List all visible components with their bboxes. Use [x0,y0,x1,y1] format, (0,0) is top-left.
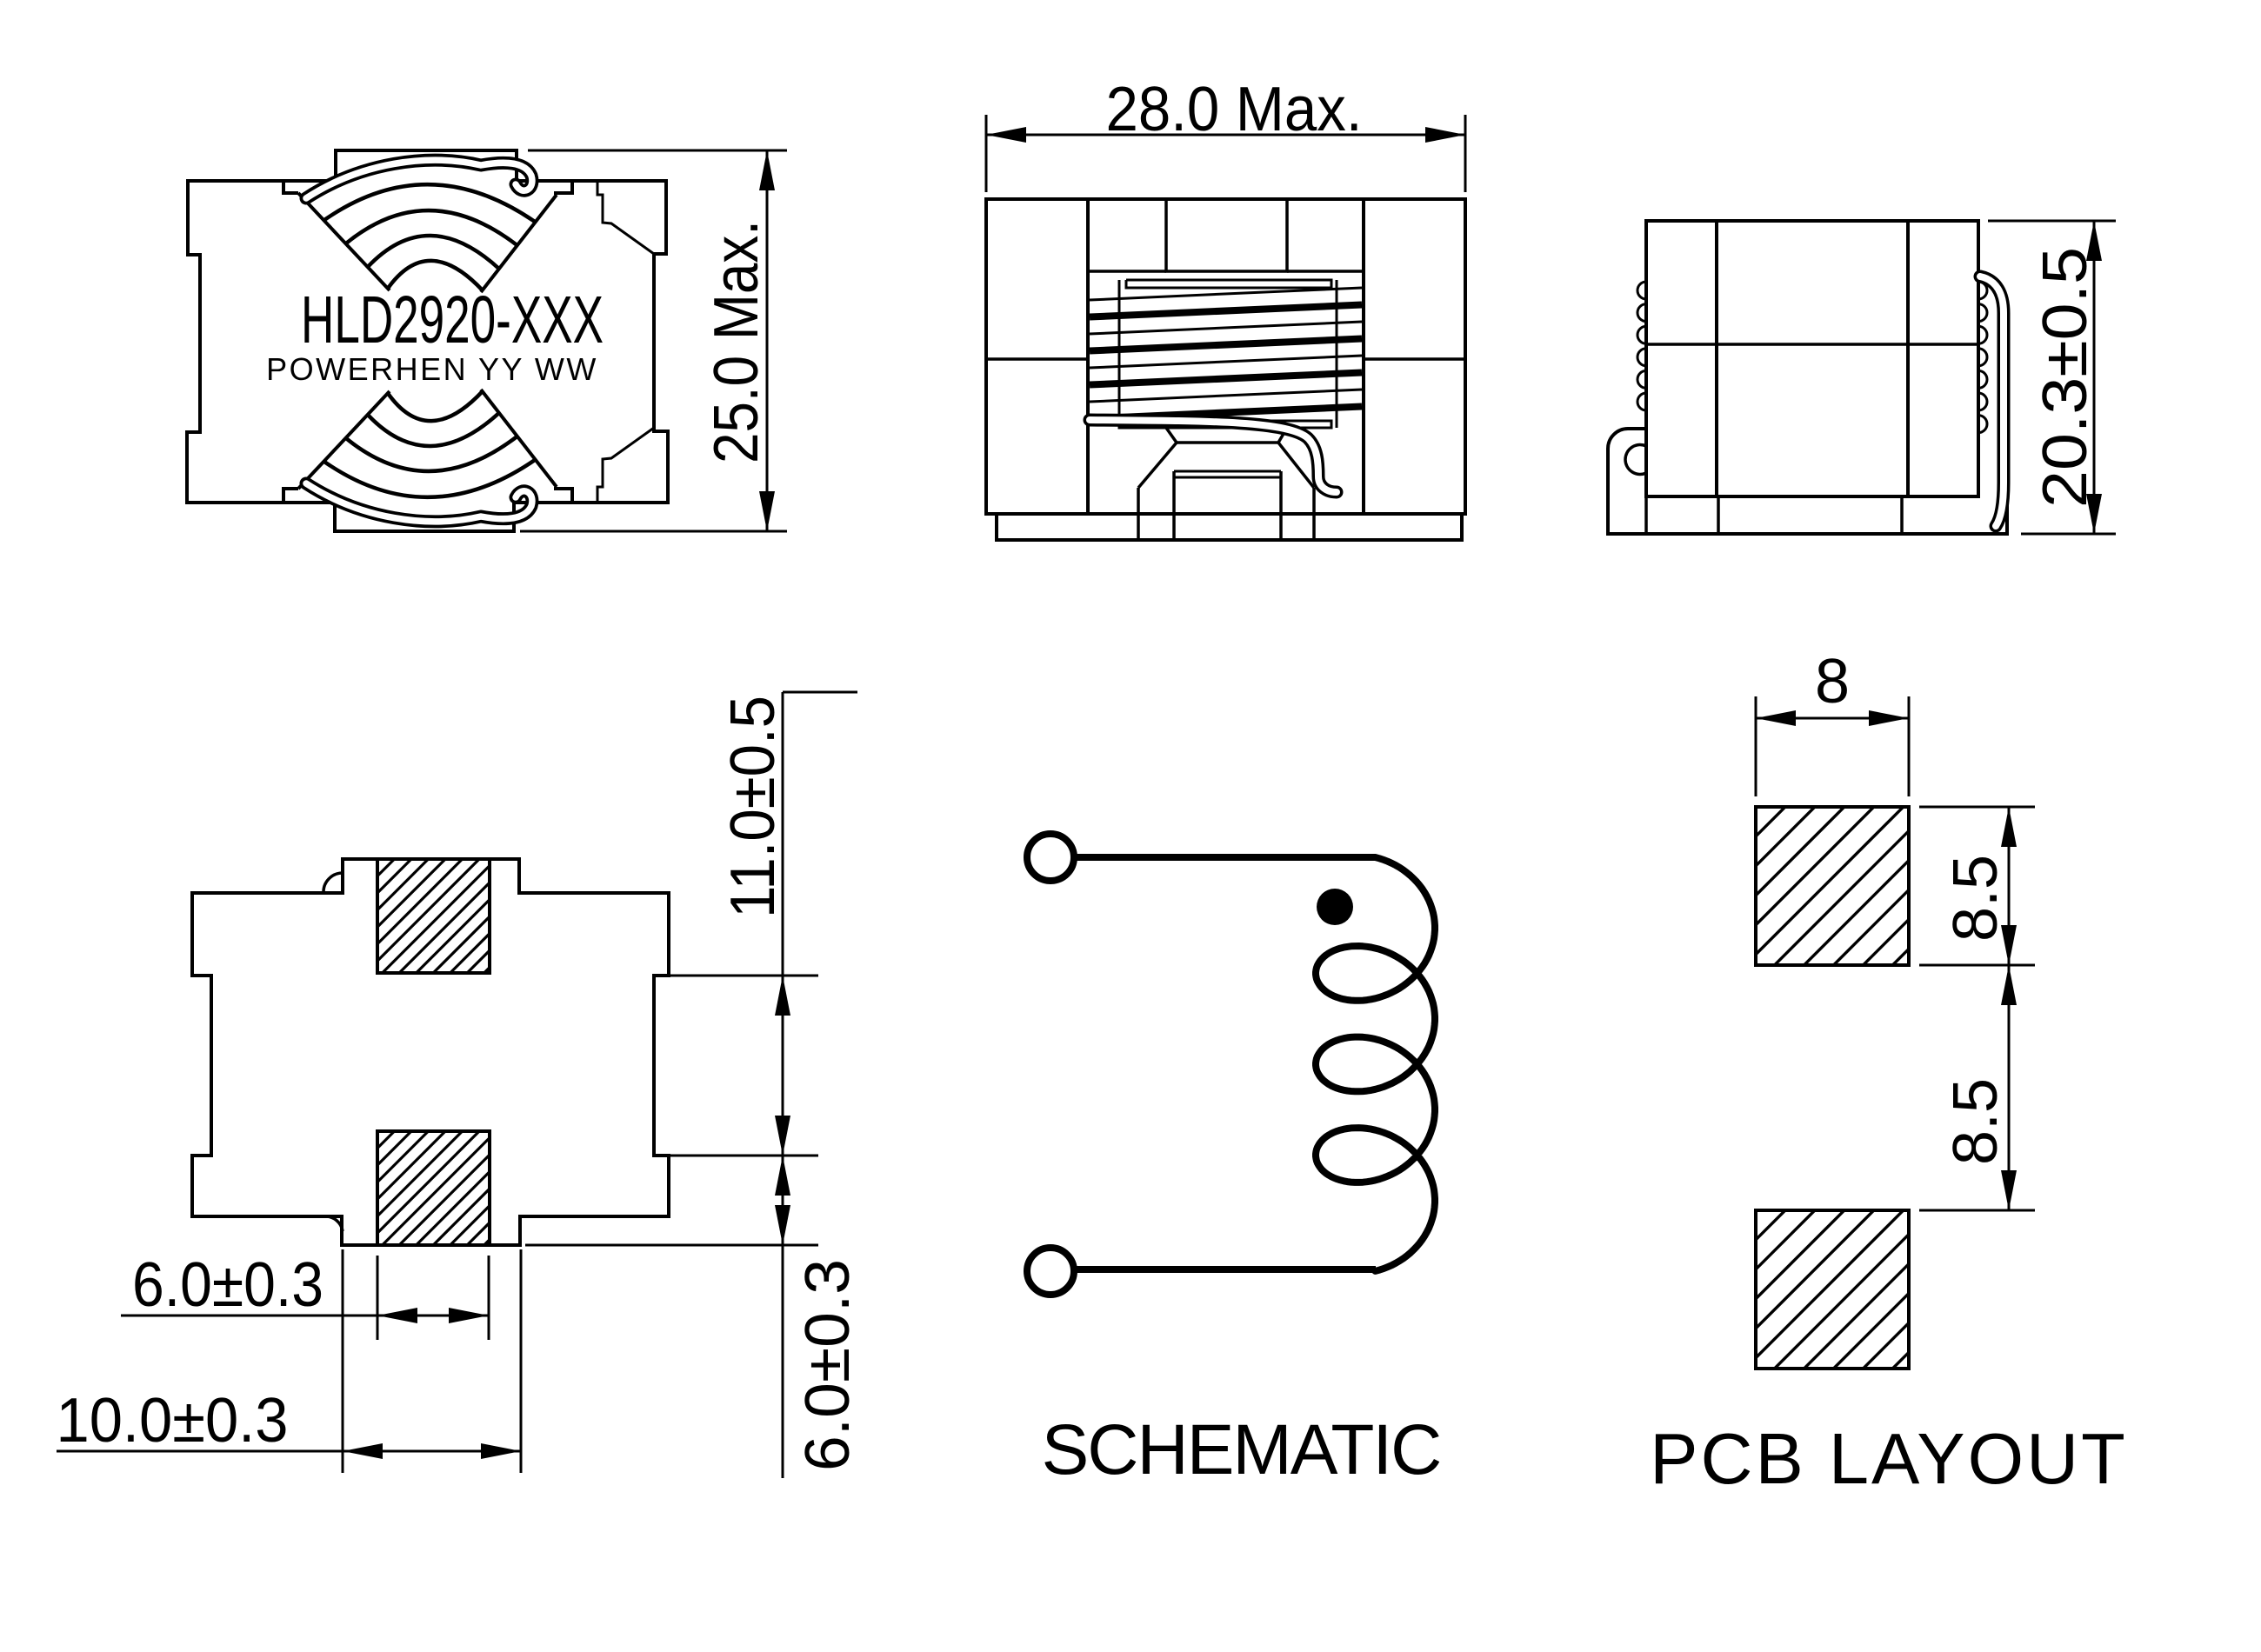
svg-text:6.0±0.3: 6.0±0.3 [793,1259,863,1471]
svg-text:25.0 Max.: 25.0 Max. [702,220,771,463]
svg-text:SCHEMATIC: SCHEMATIC [1042,1410,1441,1489]
svg-text:8.5: 8.5 [1941,1078,2011,1165]
svg-text:8.5: 8.5 [1941,855,2011,942]
svg-text:28.0 Max.: 28.0 Max. [1106,75,1363,144]
svg-text:10.0±0.3: 10.0±0.3 [57,1386,289,1455]
svg-text:POWERHEN YY WW: POWERHEN YY WW [266,351,598,387]
svg-text:6.0±0.3: 6.0±0.3 [132,1250,323,1320]
svg-text:PCB LAYOUT: PCB LAYOUT [1650,1418,2128,1499]
svg-text:8: 8 [1815,647,1850,716]
svg-text:20.3±0.5: 20.3±0.5 [2031,247,2100,508]
svg-text:11.0±0.5: 11.0±0.5 [718,696,788,918]
svg-text:HLD2920-XXX: HLD2920-XXX [301,283,604,357]
